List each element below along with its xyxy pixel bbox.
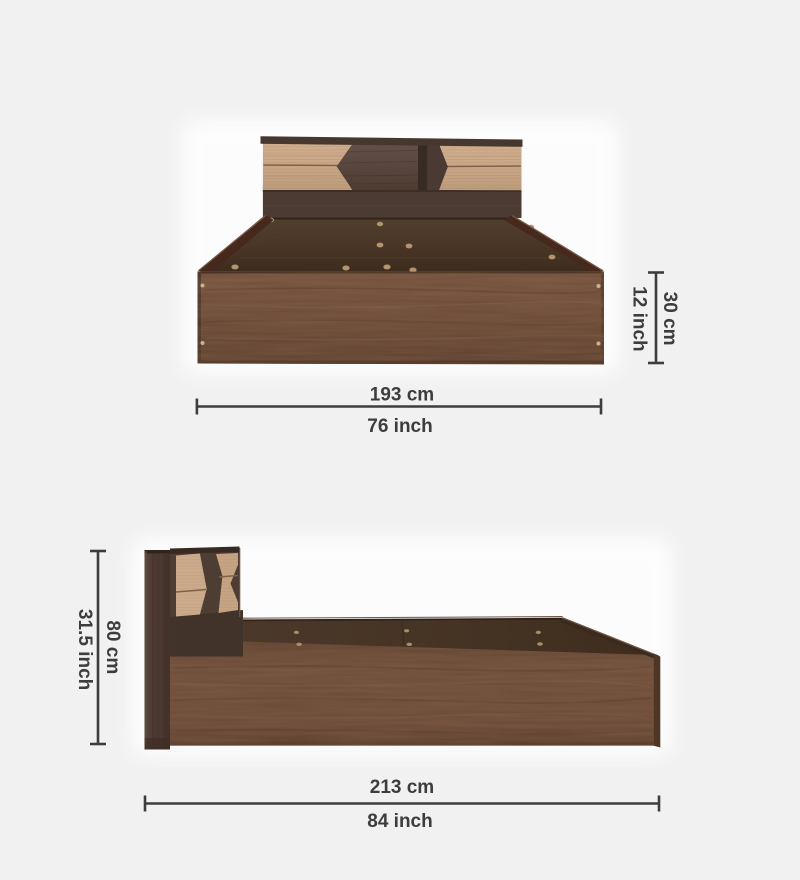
svg-text:80 cm: 80 cm	[102, 620, 123, 674]
svg-text:30 cm: 30 cm	[659, 292, 680, 346]
svg-text:76 inch: 76 inch	[367, 416, 432, 437]
svg-text:84 inch: 84 inch	[367, 811, 432, 832]
svg-text:193 cm: 193 cm	[370, 385, 434, 406]
svg-text:12 inch: 12 inch	[628, 286, 649, 351]
svg-text:31.5 inch: 31.5 inch	[74, 609, 95, 690]
svg-text:213 cm: 213 cm	[370, 777, 434, 798]
